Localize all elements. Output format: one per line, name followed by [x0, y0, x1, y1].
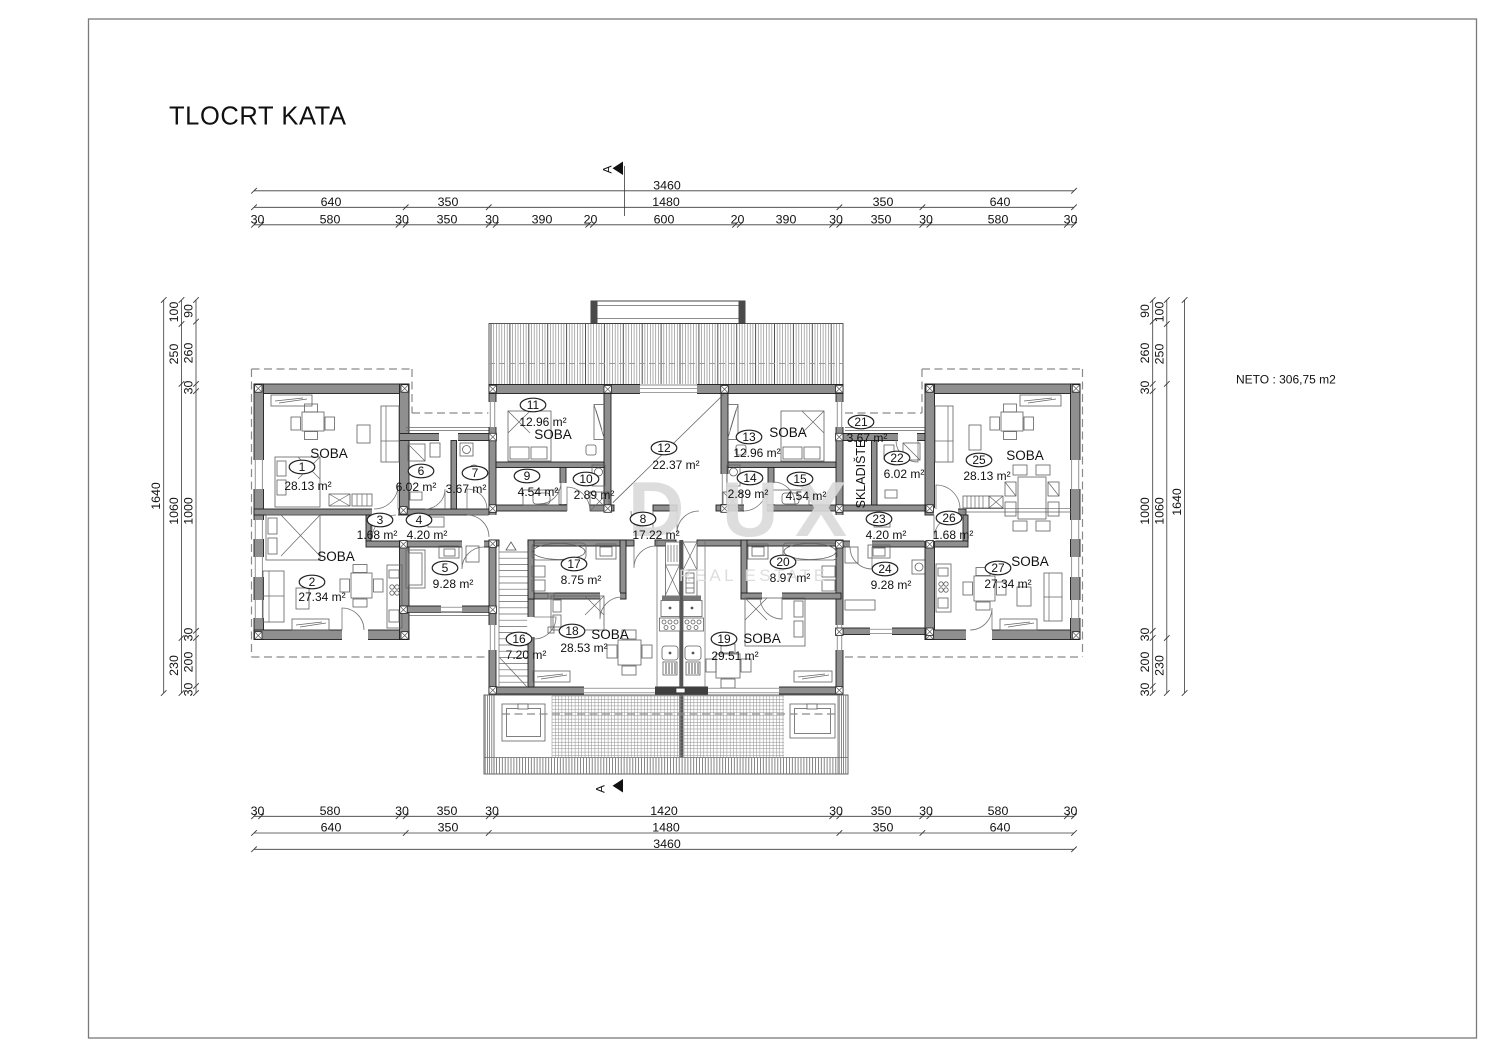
svg-text:SOBA: SOBA: [317, 549, 355, 564]
svg-text:24: 24: [878, 562, 892, 576]
svg-text:4.20 m²: 4.20 m²: [866, 528, 907, 542]
svg-text:29.51 m²: 29.51 m²: [711, 649, 758, 663]
svg-text:9.28 m²: 9.28 m²: [871, 578, 912, 592]
svg-text:8.97 m²: 8.97 m²: [770, 571, 811, 585]
svg-text:1000: 1000: [182, 497, 196, 525]
svg-text:7.20 m²: 7.20 m²: [506, 648, 547, 662]
svg-text:22: 22: [890, 451, 904, 465]
svg-text:90: 90: [1138, 304, 1152, 318]
svg-text:15: 15: [793, 472, 807, 486]
svg-text:4: 4: [416, 513, 423, 527]
svg-text:A: A: [601, 165, 615, 173]
svg-text:30: 30: [251, 212, 265, 226]
svg-text:23: 23: [872, 512, 886, 526]
svg-text:580: 580: [320, 804, 341, 818]
svg-text:230: 230: [167, 655, 181, 676]
svg-text:A: A: [594, 785, 608, 793]
svg-text:30: 30: [1064, 804, 1078, 818]
svg-text:1.68 m²: 1.68 m²: [357, 528, 398, 542]
svg-text:100: 100: [1153, 302, 1167, 323]
svg-text:16: 16: [512, 632, 526, 646]
svg-text:13: 13: [742, 430, 756, 444]
svg-text:250: 250: [1153, 344, 1167, 365]
svg-text:17: 17: [567, 557, 581, 571]
svg-text:1420: 1420: [650, 804, 678, 818]
svg-text:30: 30: [1064, 212, 1078, 226]
svg-text:2.89 m²: 2.89 m²: [728, 487, 769, 501]
svg-text:22.37 m²: 22.37 m²: [652, 458, 699, 472]
svg-text:SOBA: SOBA: [591, 627, 629, 642]
svg-text:1640: 1640: [1170, 488, 1184, 516]
svg-text:20: 20: [776, 555, 790, 569]
svg-text:25: 25: [972, 453, 986, 467]
svg-text:640: 640: [990, 195, 1011, 209]
svg-text:SOBA: SOBA: [769, 425, 807, 440]
svg-text:4.54 m²: 4.54 m²: [786, 489, 827, 503]
svg-text:3.67 m²: 3.67 m²: [446, 482, 487, 496]
svg-text:8.75 m²: 8.75 m²: [561, 573, 602, 587]
svg-text:6: 6: [418, 464, 425, 478]
svg-text:14: 14: [743, 471, 757, 485]
svg-text:30: 30: [1138, 381, 1152, 395]
svg-text:2: 2: [309, 575, 316, 589]
svg-text:11: 11: [527, 398, 540, 412]
svg-text:28.13 m²: 28.13 m²: [963, 469, 1010, 483]
svg-text:30: 30: [182, 628, 196, 642]
svg-text:390: 390: [776, 212, 797, 226]
svg-text:6.02 m²: 6.02 m²: [884, 467, 925, 481]
svg-text:4.20 m²: 4.20 m²: [407, 528, 448, 542]
svg-text:250: 250: [167, 344, 181, 365]
svg-text:20: 20: [731, 212, 745, 226]
svg-text:350: 350: [873, 195, 894, 209]
svg-text:580: 580: [988, 212, 1009, 226]
svg-text:3460: 3460: [653, 178, 681, 192]
svg-text:580: 580: [320, 212, 341, 226]
svg-text:390: 390: [532, 212, 553, 226]
svg-text:SOBA: SOBA: [310, 446, 348, 461]
svg-text:640: 640: [321, 821, 342, 835]
svg-text:30: 30: [829, 804, 843, 818]
svg-text:30: 30: [395, 804, 409, 818]
svg-text:640: 640: [321, 195, 342, 209]
svg-text:NETO : 306,75 m2: NETO : 306,75 m2: [1236, 373, 1336, 387]
svg-text:5: 5: [442, 561, 449, 575]
svg-text:27.34 m²: 27.34 m²: [298, 590, 345, 604]
svg-text:640: 640: [990, 821, 1011, 835]
svg-text:30: 30: [919, 804, 933, 818]
svg-text:26: 26: [942, 511, 956, 525]
svg-text:1480: 1480: [652, 195, 680, 209]
svg-text:600: 600: [654, 212, 675, 226]
svg-text:3: 3: [377, 513, 384, 527]
svg-text:350: 350: [438, 195, 459, 209]
svg-text:21: 21: [854, 415, 868, 429]
svg-text:30: 30: [1138, 628, 1152, 642]
svg-text:10: 10: [579, 472, 593, 486]
svg-text:3460: 3460: [653, 837, 681, 851]
svg-text:SOBA: SOBA: [534, 427, 572, 442]
svg-text:6.02 m²: 6.02 m²: [396, 480, 437, 494]
svg-text:8: 8: [640, 512, 647, 526]
svg-text:350: 350: [437, 804, 458, 818]
svg-text:1: 1: [299, 460, 306, 474]
svg-text:350: 350: [871, 804, 892, 818]
svg-text:7: 7: [472, 466, 479, 480]
svg-text:350: 350: [438, 821, 459, 835]
svg-text:28.53 m²: 28.53 m²: [560, 641, 607, 655]
svg-text:230: 230: [1153, 655, 1167, 676]
svg-text:100: 100: [167, 302, 181, 323]
svg-text:580: 580: [988, 804, 1009, 818]
svg-text:2.89 m²: 2.89 m²: [574, 488, 615, 502]
svg-text:1060: 1060: [1153, 497, 1167, 525]
svg-text:260: 260: [182, 343, 196, 364]
svg-text:30: 30: [395, 212, 409, 226]
svg-text:350: 350: [437, 212, 458, 226]
svg-text:1000: 1000: [1138, 497, 1152, 525]
svg-text:18: 18: [565, 624, 579, 638]
svg-text:9: 9: [524, 469, 531, 483]
svg-text:1060: 1060: [167, 497, 181, 525]
svg-text:9.28 m²: 9.28 m²: [433, 577, 474, 591]
svg-text:30: 30: [1138, 683, 1152, 697]
svg-text:SOBA: SOBA: [743, 631, 781, 646]
svg-text:30: 30: [182, 683, 196, 697]
svg-text:350: 350: [871, 212, 892, 226]
svg-text:TLOCRT KATA: TLOCRT KATA: [169, 103, 347, 131]
svg-text:200: 200: [1138, 652, 1152, 673]
svg-text:30: 30: [182, 381, 196, 395]
svg-text:17.22 m²: 17.22 m²: [632, 528, 679, 542]
svg-text:30: 30: [919, 212, 933, 226]
svg-text:30: 30: [829, 212, 843, 226]
svg-text:SKLADIŠTE: SKLADIŠTE: [853, 440, 868, 509]
svg-text:1.68 m²: 1.68 m²: [933, 528, 974, 542]
svg-text:350: 350: [873, 821, 894, 835]
svg-text:260: 260: [1138, 343, 1152, 364]
svg-text:SOBA: SOBA: [1006, 448, 1044, 463]
svg-text:4.54 m²: 4.54 m²: [518, 485, 559, 499]
svg-text:30: 30: [251, 804, 265, 818]
svg-text:27.34 m²: 27.34 m²: [984, 577, 1031, 591]
svg-text:90: 90: [182, 304, 196, 318]
svg-text:20: 20: [584, 212, 598, 226]
svg-text:SOBA: SOBA: [1011, 554, 1049, 569]
svg-text:12: 12: [657, 441, 671, 455]
svg-text:19: 19: [717, 632, 731, 646]
svg-text:200: 200: [182, 652, 196, 673]
svg-text:1480: 1480: [652, 821, 680, 835]
svg-text:30: 30: [485, 804, 499, 818]
svg-text:12.96 m²: 12.96 m²: [733, 446, 780, 460]
svg-text:30: 30: [485, 212, 499, 226]
svg-text:27: 27: [991, 561, 1005, 575]
svg-text:1640: 1640: [149, 482, 163, 510]
svg-text:28.13 m²: 28.13 m²: [284, 479, 331, 493]
